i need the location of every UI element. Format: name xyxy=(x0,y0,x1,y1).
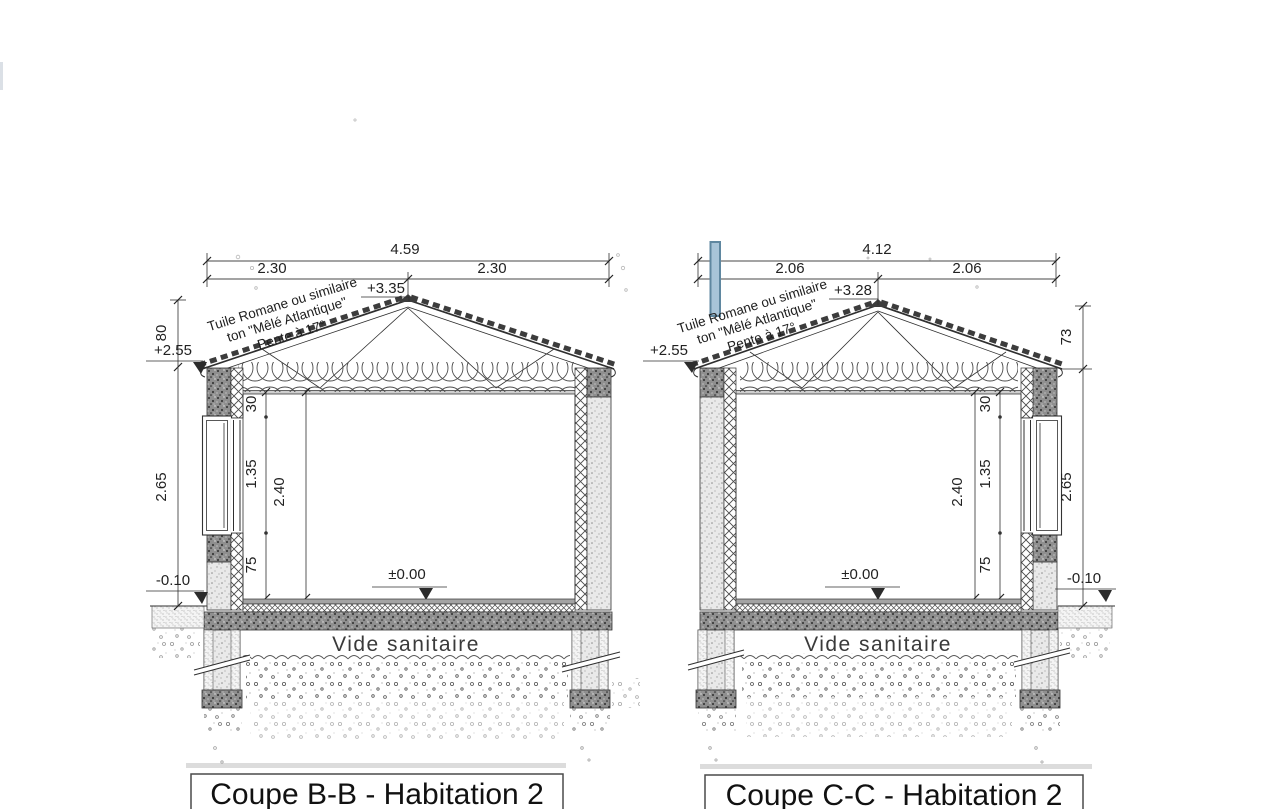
scan-noise xyxy=(0,62,978,291)
bb-interior-dimensions: 30 1.35 75 2.40 xyxy=(243,388,310,602)
bb-dim-right-half: 2.30 xyxy=(477,260,506,277)
bb-floor-level-text: ±0.00 xyxy=(388,566,425,583)
bb-dim-left-half: 2.30 xyxy=(257,260,286,277)
bb-eave-level-text: +2.55 xyxy=(154,342,192,359)
bb-dim-room-height: 2.40 xyxy=(271,477,288,506)
cc-dim-facade-height: 2.65 xyxy=(1058,472,1075,501)
bb-crawl-space-label: Vide sanitaire xyxy=(332,633,480,656)
cc-left-wall xyxy=(700,368,736,610)
cc-right-wall xyxy=(1021,368,1062,610)
bb-floor-slab xyxy=(204,599,612,630)
cc-title: Coupe C-C - Habitation 2 xyxy=(726,779,1063,809)
architectural-drawing: 4.59 2.30 2.30 +3.35 Tu xyxy=(0,0,1280,809)
bb-dim-facade-height: 2.65 xyxy=(153,472,170,501)
cc-dim-room-height: 2.40 xyxy=(949,477,966,506)
cc-top-dimensions: 4.12 2.06 2.06 xyxy=(694,241,1060,304)
section-bb: 4.59 2.30 2.30 +3.35 Tu xyxy=(146,241,640,809)
cc-ground-level-text: -0.10 xyxy=(1067,570,1101,587)
bb-title: Coupe B-B - Habitation 2 xyxy=(210,778,544,809)
bb-dim-roof-rise: 80 xyxy=(153,325,170,342)
cc-interior-dimensions: 30 1.35 75 2.40 xyxy=(949,388,1004,602)
bb-right-wall xyxy=(575,368,611,610)
cc-dim-sill: 75 xyxy=(977,557,994,574)
cc-dim-left-half: 2.06 xyxy=(775,260,804,277)
cc-ridge-level-text: +3.28 xyxy=(834,282,872,299)
bb-left-annotations: 80 +2.55 2.65 -0.10 xyxy=(146,296,208,610)
bb-ground-level-text: -0.10 xyxy=(156,572,190,589)
cc-dim-lintel: 30 xyxy=(977,396,994,413)
bb-dim-window-height: 1.35 xyxy=(243,459,260,488)
bb-top-dimensions: 4.59 2.30 2.30 xyxy=(203,241,613,299)
bb-floor-level: ±0.00 xyxy=(372,566,447,600)
cc-dim-roof-rise: 73 xyxy=(1058,329,1075,346)
cc-left-annotations: +2.55 xyxy=(643,342,699,373)
cc-dim-right-half: 2.06 xyxy=(952,260,981,277)
bb-dim-lintel: 30 xyxy=(243,396,260,413)
bb-roof-insulation xyxy=(238,362,578,392)
bb-dim-total-width: 4.59 xyxy=(390,241,419,258)
cc-floor-level-text: ±0.00 xyxy=(841,566,878,583)
cc-dim-total-width: 4.12 xyxy=(862,241,891,258)
section-cc: 4.12 2.06 2.06 +3.28 Tuile Romane xyxy=(643,241,1116,809)
cc-floor-level: ±0.00 xyxy=(825,566,900,600)
cc-right-annotations: 73 2.65 -0.10 xyxy=(1055,302,1116,610)
bb-title-box: Coupe B-B - Habitation 2 xyxy=(186,763,566,809)
bb-dim-sill: 75 xyxy=(243,557,260,574)
cc-dim-window-height: 1.35 xyxy=(977,459,994,488)
cc-title-box: Coupe C-C - Habitation 2 xyxy=(700,764,1092,809)
cc-floor-slab xyxy=(700,599,1058,630)
bb-ridge-level-text: +3.35 xyxy=(367,280,405,297)
cc-crawl-space-label: Vide sanitaire xyxy=(804,633,952,656)
highlight-marker-bar xyxy=(711,242,721,316)
bb-left-wall xyxy=(203,368,244,610)
cc-roof-insulation xyxy=(740,362,1018,392)
cc-eave-level-text: +2.55 xyxy=(650,342,688,359)
